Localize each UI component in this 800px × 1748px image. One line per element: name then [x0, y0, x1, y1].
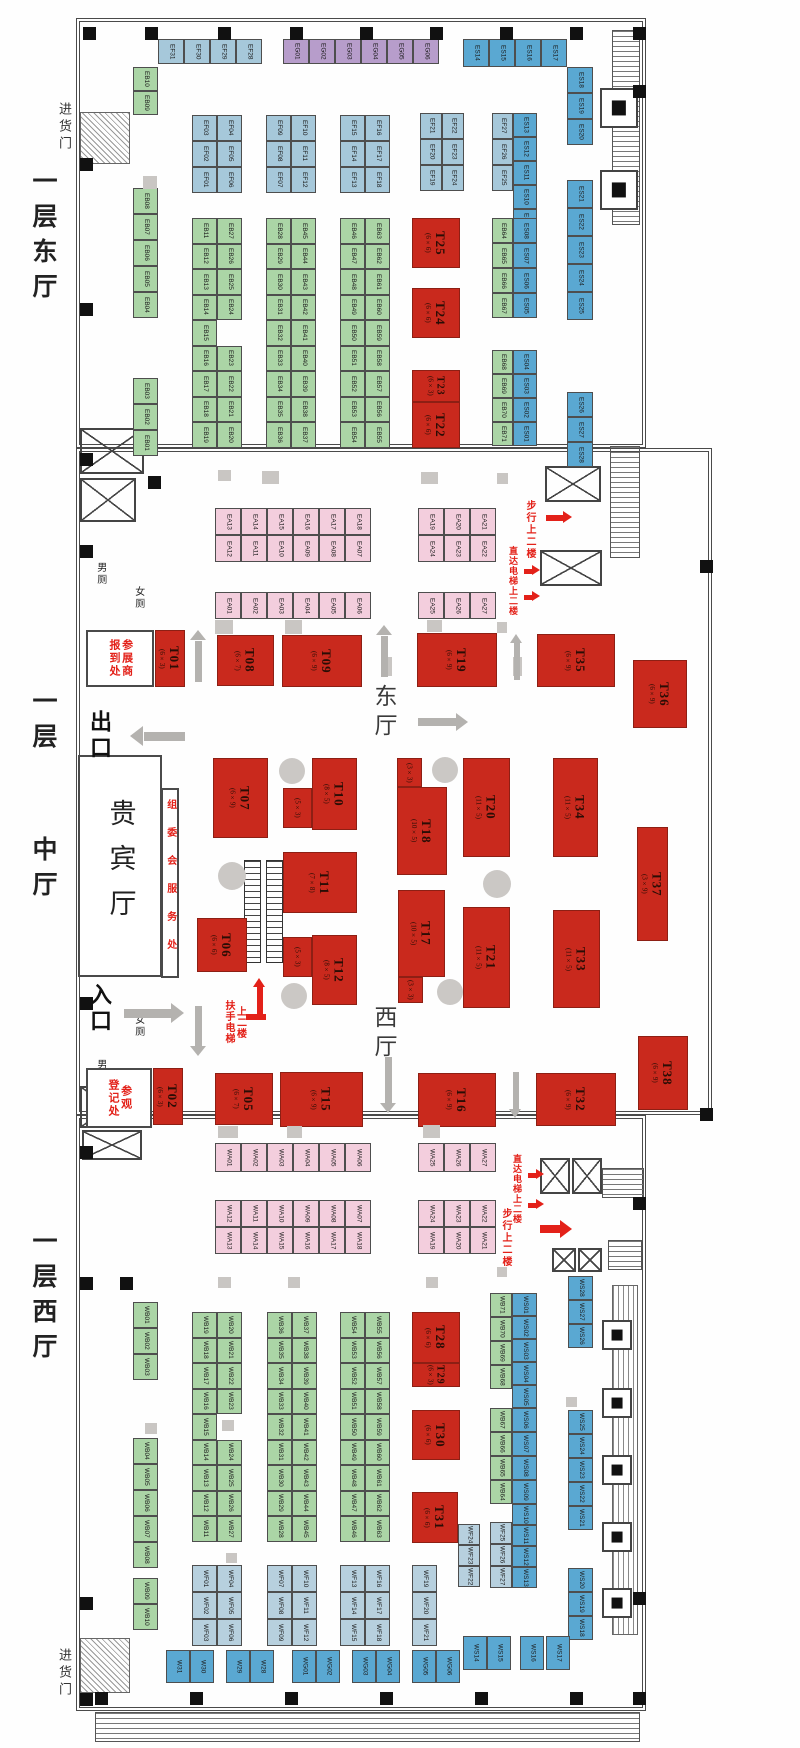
booth-EB18: EB18 [192, 397, 217, 423]
booth-WB55: WB55 [365, 1312, 390, 1338]
booth-T11: T11(7×8) [283, 852, 357, 913]
booth-WS13: WS13 [512, 1567, 537, 1588]
room-贵宾厅: 贵宾厅 [78, 755, 162, 977]
booth-ES04: ES04 [513, 350, 537, 374]
booth-WB35: WB35 [267, 1338, 292, 1364]
booth-EB68: EB68 [492, 350, 513, 374]
booth-T15: T15(6×9) [280, 1072, 363, 1127]
booth-T20: T20(11×5) [463, 758, 510, 857]
booth-EF06: EF06 [217, 167, 242, 193]
stairs-1 [610, 446, 640, 558]
booth-WA19: WA19 [418, 1227, 444, 1254]
booth-ES16: ES16 [515, 39, 541, 67]
booth-EB59: EB59 [365, 320, 390, 346]
booth-WA17: WA17 [319, 1227, 345, 1254]
booth-WF26: WF26 [490, 1544, 512, 1566]
booth-ES24: ES24 [567, 264, 593, 292]
wall-pillar-3 [290, 27, 303, 40]
booth-EA25: EA25 [418, 592, 444, 619]
wall-pillar-26 [700, 1108, 713, 1121]
booth-WB62: WB62 [365, 1491, 390, 1517]
booth-EA20: EA20 [444, 508, 470, 535]
gray-block-8 [497, 622, 507, 633]
booth-WS25: WS25 [568, 1410, 593, 1434]
label-中厅: 中厅 [30, 836, 55, 906]
wall-pillar-19 [190, 1692, 203, 1705]
booth-EF09: EF09 [266, 115, 291, 141]
booth-WB71: WB71 [490, 1293, 512, 1317]
booth-WF25: WF25 [490, 1522, 512, 1544]
booth-EG06: EG06 [413, 39, 439, 64]
booth-WB01: WB01 [133, 1302, 158, 1328]
booth-WB63: WB63 [365, 1516, 390, 1542]
booth-WB60: WB60 [365, 1440, 390, 1466]
booth-WB68: WB68 [490, 1365, 512, 1389]
booth-ES25: ES25 [567, 292, 593, 320]
booth-EB48: EB48 [340, 269, 365, 295]
booth-WB70: WB70 [490, 1317, 512, 1341]
booth-EF03: EF03 [192, 115, 217, 141]
label-进货门: 进货门 [58, 1648, 71, 1699]
booth-T36: T36(6×9) [633, 660, 687, 728]
booth-T22: T22(6×6) [412, 402, 460, 448]
booth-WB34: WB34 [267, 1363, 292, 1389]
booth-WG03: WG03 [352, 1650, 376, 1683]
booth-EB14: EB14 [192, 295, 217, 321]
booth-WF09: WF09 [267, 1619, 292, 1646]
booth-WS10: WS10 [512, 1504, 537, 1525]
booth-EB66: EB66 [492, 268, 513, 293]
booth-T16: T16(6×9) [418, 1073, 496, 1127]
booth-WS16: WS16 [520, 1636, 544, 1670]
booth-EB26: EB26 [217, 244, 242, 270]
booth-T07: T07(6×9) [213, 758, 268, 838]
booth-EA10: EA10 [267, 535, 293, 562]
booth-EF14: EF14 [340, 141, 365, 167]
booth-WB06: WB06 [133, 1490, 158, 1516]
booth-EB33: EB33 [266, 346, 291, 372]
booth-ES06: ES06 [513, 268, 537, 293]
booth-WB33: WB33 [267, 1389, 292, 1415]
booth-EB23: EB23 [217, 346, 242, 372]
booth-EB04: EB04 [133, 292, 158, 318]
wall-pillar-27 [633, 1197, 646, 1210]
booth-EB25: EB25 [217, 269, 242, 295]
booth-ES10: ES10 [513, 185, 537, 209]
booth-EB41: EB41 [291, 320, 316, 346]
booth-WB44: WB44 [292, 1491, 317, 1517]
booth-T18-annex: (3×3) [397, 758, 422, 787]
wall-pillar-5 [430, 27, 443, 40]
booth-T29: T29(6×3) [412, 1363, 460, 1387]
pillar-circle-2 [218, 862, 246, 890]
booth-WB39: WB39 [292, 1363, 317, 1389]
booth-WF19: WF19 [412, 1565, 437, 1592]
booth-WB26: WB26 [217, 1491, 242, 1517]
booth-WA02: WA02 [241, 1143, 267, 1172]
booth-WA04: WA04 [293, 1143, 319, 1172]
wall-pillar-17 [80, 1693, 93, 1706]
wall-pillar-13 [80, 997, 93, 1010]
pillar-circle-4 [281, 983, 307, 1009]
booth-WB12: WB12 [192, 1491, 217, 1517]
booth-WA14: WA14 [241, 1227, 267, 1254]
booth-EF07: EF07 [266, 167, 291, 193]
booth-T24: T24(6×6) [412, 288, 460, 338]
booth-WF08: WF08 [267, 1592, 292, 1619]
booth-T10-annex: (5×3) [283, 788, 312, 828]
booth-WB25: WB25 [217, 1465, 242, 1491]
door-hatch-5 [80, 112, 130, 164]
booth-WB23: WB23 [217, 1389, 242, 1415]
booth-EB02: EB02 [133, 404, 158, 430]
booth-WB48: WB48 [340, 1465, 365, 1491]
elevator-icon-9 [578, 1248, 602, 1272]
booth-WS12: WS12 [512, 1546, 537, 1567]
booth-W30: W30 [190, 1650, 214, 1683]
booth-EB05: EB05 [133, 266, 158, 292]
gray-block-1 [218, 470, 231, 481]
booth-WS24: WS24 [568, 1434, 593, 1458]
booth-WB61: WB61 [365, 1465, 390, 1491]
booth-WB53: WB53 [340, 1338, 365, 1364]
booth-WA13: WA13 [215, 1227, 241, 1254]
label-步行上二楼: 步行上二楼 [524, 500, 534, 560]
booth-WB43: WB43 [292, 1465, 317, 1491]
pillar-circle-1 [432, 757, 458, 783]
booth-EF24: EF24 [442, 165, 464, 191]
booth-EB46: EB46 [340, 218, 365, 244]
booth-EB27: EB27 [217, 218, 242, 244]
gray-block-7 [427, 620, 442, 632]
booth-T34: T34(11×5) [553, 758, 598, 857]
booth-WA06: WA06 [345, 1143, 371, 1172]
booth-WS15: WS15 [487, 1636, 511, 1670]
wall-pillar-24 [633, 1692, 646, 1705]
gray-block-13 [288, 1277, 300, 1288]
wall-pillar-1 [145, 27, 158, 40]
booth-EB13: EB13 [192, 269, 217, 295]
booth-ES15: ES15 [489, 39, 515, 67]
pillar-circle-0 [279, 758, 305, 784]
booth-WF04: WF04 [217, 1565, 242, 1592]
booth-EB51: EB51 [340, 346, 365, 372]
wall-pillar-12 [80, 545, 93, 558]
red-arrow-segment-0 [246, 1014, 266, 1020]
booth-EB38: EB38 [291, 397, 316, 423]
booth-EB29: EB29 [266, 244, 291, 270]
booth-T21: T21(11×5) [463, 907, 510, 1008]
booth-WB47: WB47 [340, 1491, 365, 1517]
elevator-icon-2 [545, 466, 601, 502]
gray-block-11 [423, 1125, 440, 1138]
booth-EF18: EF18 [365, 167, 390, 193]
booth-WB42: WB42 [292, 1440, 317, 1466]
booth-EB43: EB43 [291, 269, 316, 295]
booth-ES01: ES01 [513, 422, 537, 446]
label-一层西厅: 一层西厅 [30, 1228, 55, 1368]
booth-WS17: WS17 [546, 1636, 570, 1670]
booth-EA21: EA21 [470, 508, 496, 535]
booth-WS01: WS01 [512, 1293, 537, 1316]
room-上二楼扶手电梯: 上二楼扶手电梯 [218, 994, 250, 1050]
wall-pillar-31 [633, 85, 646, 98]
booth-WB57: WB57 [365, 1363, 390, 1389]
booth-EA27: EA27 [470, 592, 496, 619]
booth-WF01: WF01 [192, 1565, 217, 1592]
booth-ES18: ES18 [567, 67, 593, 93]
gray-block-15 [145, 1423, 157, 1434]
wall-pillar-30 [148, 476, 161, 489]
booth-WA20: WA20 [444, 1227, 470, 1254]
booth-ES14: ES14 [463, 39, 489, 67]
booth-EA13: EA13 [215, 508, 241, 535]
booth-EF15: EF15 [340, 115, 365, 141]
pillar-circle-5 [437, 979, 463, 1005]
booth-WB19: WB19 [192, 1312, 217, 1338]
booth-WF20: WF20 [412, 1592, 437, 1619]
booth-WB38: WB38 [292, 1338, 317, 1364]
booth-EB12: EB12 [192, 244, 217, 270]
booth-T37: T37(3×9) [637, 827, 668, 941]
booth-EB62: EB62 [365, 244, 390, 270]
booth-WB58: WB58 [365, 1389, 390, 1415]
floor-plan: EF31EF30EF29EF28EG01EG02EG03EG04EG05EG06… [0, 0, 800, 1748]
booth-EG02: EG02 [309, 39, 335, 64]
booth-EA23: EA23 [444, 535, 470, 562]
booth-EB10: EB10 [133, 67, 158, 91]
booth-WF12: WF12 [292, 1619, 317, 1646]
booth-EB71: EB71 [492, 422, 513, 446]
wall-pillar-8 [633, 27, 646, 40]
booth-ES28: ES28 [567, 442, 593, 467]
booth-WF13: WF13 [340, 1565, 365, 1592]
elevator-icon-8 [552, 1248, 576, 1272]
booth-EB47: EB47 [340, 244, 365, 270]
booth-EB50: EB50 [340, 320, 365, 346]
booth-WB49: WB49 [340, 1440, 365, 1466]
booth-WB18: WB18 [192, 1338, 217, 1364]
booth-EF04: EF04 [217, 115, 242, 141]
booth-WS06: WS06 [512, 1408, 537, 1432]
booth-WB67: WB67 [490, 1408, 512, 1432]
booth-EA19: EA19 [418, 508, 444, 535]
booth-EA12: EA12 [215, 535, 241, 562]
booth-EB45: EB45 [291, 218, 316, 244]
booth-EA24: EA24 [418, 535, 444, 562]
booth-T12: T12(8×5) [312, 935, 357, 1005]
booth-EB03: EB03 [133, 378, 158, 404]
booth-EA15: EA15 [267, 508, 293, 535]
booth-T19: T19(6×9) [417, 633, 497, 687]
booth-EA26: EA26 [444, 592, 470, 619]
booth-WF11: WF11 [292, 1592, 317, 1619]
gray-block-2 [262, 471, 279, 484]
booth-WB51: WB51 [340, 1389, 365, 1415]
booth-T18: T18(10×5) [397, 787, 447, 875]
booth-W29: W29 [226, 1650, 250, 1683]
booth-WF27: WF27 [490, 1566, 512, 1588]
booth-WA07: WA07 [345, 1200, 371, 1227]
booth-EA11: EA11 [241, 535, 267, 562]
booth-WA11: WA11 [241, 1200, 267, 1227]
booth-WB15: WB15 [192, 1414, 217, 1440]
booth-EA16: EA16 [293, 508, 319, 535]
booth-WA18: WA18 [345, 1227, 371, 1254]
booth-ES17: ES17 [541, 39, 567, 67]
booth-WB14: WB14 [192, 1440, 217, 1466]
wall-pillar-25 [700, 560, 713, 573]
booth-T05: T05(6×7) [215, 1073, 273, 1125]
booth-EB61: EB61 [365, 269, 390, 295]
booth-ES13: ES13 [513, 113, 537, 137]
gray-block-16 [222, 1420, 234, 1431]
booth-EA14: EA14 [241, 508, 267, 535]
booth-WA15: WA15 [267, 1227, 293, 1254]
booth-EB52: EB52 [340, 371, 365, 397]
label-一层: 一层 [30, 688, 55, 758]
booth-WG02: WG02 [316, 1650, 340, 1683]
booth-WS09: WS09 [512, 1480, 537, 1504]
booth-EB16: EB16 [192, 346, 217, 372]
booth-WS11: WS11 [512, 1525, 537, 1546]
wall-pillar-7 [570, 27, 583, 40]
booth-T32: T32(6×9) [536, 1073, 616, 1126]
label-一层东厅: 一层东厅 [30, 168, 55, 308]
wall-pillar-15 [80, 1277, 93, 1290]
booth-WB29: WB29 [267, 1491, 292, 1517]
gray-block-6 [285, 620, 302, 634]
booth-T23: T23(6×3) [412, 370, 460, 402]
booth-WA12: WA12 [215, 1200, 241, 1227]
booth-WB41: WB41 [292, 1414, 317, 1440]
booth-WS04: WS04 [512, 1362, 537, 1385]
booth-ES26: ES26 [567, 392, 593, 417]
booth-WB69: WB69 [490, 1341, 512, 1365]
booth-WB27: WB27 [217, 1516, 242, 1542]
booth-T12-annex: (5×3) [283, 937, 312, 977]
booth-WF03: WF03 [192, 1619, 217, 1646]
booth-EB35: EB35 [266, 397, 291, 423]
booth-T17: T17(10×5) [398, 890, 445, 977]
booth-EB08: EB08 [133, 188, 158, 214]
booth-ES21: ES21 [567, 180, 593, 208]
booth-WA21: WA21 [470, 1227, 496, 1254]
booth-WF22: WF22 [458, 1566, 480, 1587]
booth-EB15: EB15 [192, 320, 217, 346]
booth-T17-annex: (3×3) [398, 977, 423, 1003]
booth-EB57: EB57 [365, 371, 390, 397]
booth-EF17: EF17 [365, 141, 390, 167]
booth-EB70: EB70 [492, 398, 513, 422]
booth-EA02: EA02 [241, 592, 267, 619]
booth-EB32: EB32 [266, 320, 291, 346]
escalator-icon-1 [266, 860, 283, 963]
booth-EB01: EB01 [133, 430, 158, 456]
booth-EF10: EF10 [291, 115, 316, 141]
booth-WS05: WS05 [512, 1385, 537, 1408]
booth-T30: T30(6×6) [412, 1410, 460, 1460]
booth-ES12: ES12 [513, 137, 537, 161]
booth-WF21: WF21 [412, 1619, 437, 1646]
booth-WB07: WB07 [133, 1516, 158, 1542]
booth-WF24: WF24 [458, 1524, 480, 1545]
wall-pillar-20 [285, 1692, 298, 1705]
booth-EG04: EG04 [361, 39, 387, 64]
label-直达电梯上二楼: 直达电梯上二楼 [512, 1154, 521, 1224]
booth-WB10: WB10 [133, 1604, 158, 1630]
room-女厕: 女厕 [126, 572, 150, 624]
booth-EF21: EF21 [420, 113, 442, 139]
booth-EB06: EB06 [133, 240, 158, 266]
booth-WA05: WA05 [319, 1143, 345, 1172]
booth-WB56: WB56 [365, 1338, 390, 1364]
column-box-4 [602, 1455, 632, 1485]
booth-WB13: WB13 [192, 1465, 217, 1491]
booth-EF05: EF05 [217, 141, 242, 167]
column-box-1 [600, 170, 638, 210]
booth-WB17: WB17 [192, 1363, 217, 1389]
booth-WB04: WB04 [133, 1438, 158, 1464]
label-进货门: 进货门 [58, 102, 71, 153]
booth-WB46: WB46 [340, 1516, 365, 1542]
elevator-icon-1 [80, 478, 136, 522]
booth-T35: T35(6×9) [537, 634, 615, 687]
booth-EA22: EA22 [470, 535, 496, 562]
booth-EB56: EB56 [365, 397, 390, 423]
booth-EA01: EA01 [215, 592, 241, 619]
booth-WB59: WB59 [365, 1414, 390, 1440]
gray-block-5 [215, 620, 233, 634]
booth-WF18: WF18 [365, 1619, 390, 1646]
booth-EB31: EB31 [266, 295, 291, 321]
booth-WA09: WA09 [293, 1200, 319, 1227]
booth-T38: T38(6×9) [638, 1036, 688, 1110]
booth-T10: T10(8×5) [312, 758, 357, 830]
booth-EF16: EF16 [365, 115, 390, 141]
booth-EB42: EB42 [291, 295, 316, 321]
booth-ES27: ES27 [567, 417, 593, 442]
booth-EF29: EF29 [210, 39, 236, 64]
booth-T25: T25(6×6) [412, 218, 460, 268]
booth-EB30: EB30 [266, 269, 291, 295]
booth-ES08: ES08 [513, 218, 537, 243]
booth-EB49: EB49 [340, 295, 365, 321]
gray-block-9 [218, 1126, 238, 1138]
booth-WA03: WA03 [267, 1143, 293, 1172]
booth-EF26: EF26 [492, 139, 513, 165]
booth-EB64: EB64 [492, 218, 513, 243]
gray-block-14 [426, 1277, 438, 1288]
elevator-icon-7 [572, 1158, 602, 1194]
booth-EA07: EA07 [345, 535, 371, 562]
booth-WB28: WB28 [267, 1516, 292, 1542]
gray-block-17 [497, 1267, 507, 1277]
booth-EB40: EB40 [291, 346, 316, 372]
booth-T31: T31(6×6) [412, 1492, 458, 1543]
booth-ES19: ES19 [567, 93, 593, 119]
booth-EF11: EF11 [291, 141, 316, 167]
booth-WS02: WS02 [512, 1316, 537, 1339]
booth-WS03: WS03 [512, 1339, 537, 1362]
booth-EB58: EB58 [365, 346, 390, 372]
booth-WG04: WG04 [376, 1650, 400, 1683]
booth-EB65: EB65 [492, 243, 513, 268]
booth-WB11: WB11 [192, 1516, 217, 1542]
booth-WS07: WS07 [512, 1432, 537, 1456]
booth-ES07: ES07 [513, 243, 537, 268]
booth-WF10: WF10 [292, 1565, 317, 1592]
